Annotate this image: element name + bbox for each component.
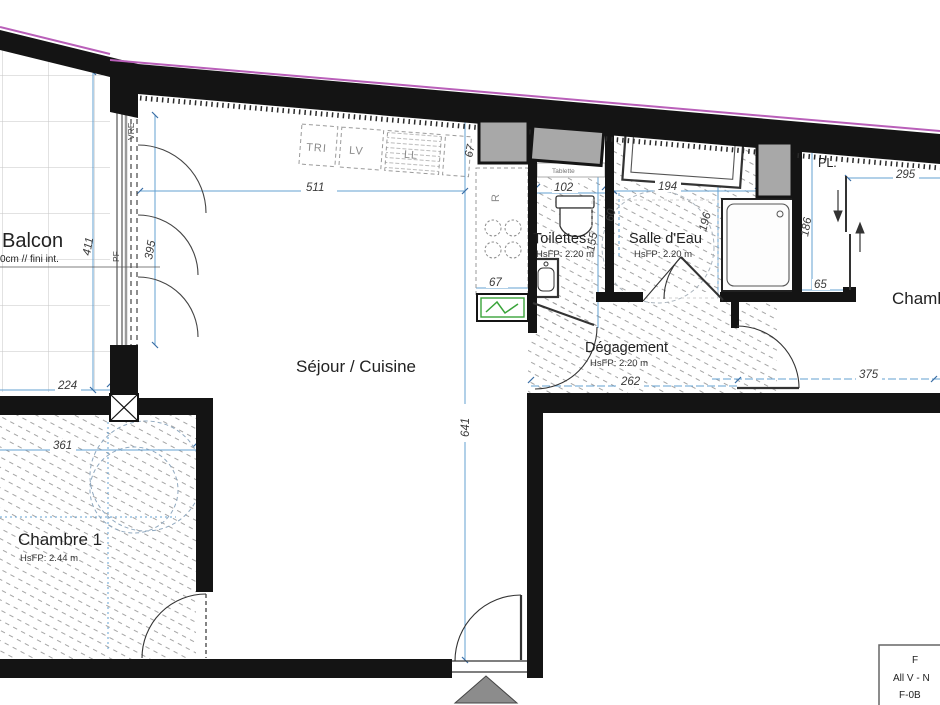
dim-224: 224 bbox=[57, 380, 77, 392]
balcony-window bbox=[117, 110, 206, 350]
chambre1-label: Chambre 1 bbox=[18, 530, 102, 549]
floor-plan-page: TRI LV LL R Tablette bbox=[0, 0, 940, 705]
facade-corner bbox=[110, 57, 138, 118]
dim-295: 295 bbox=[895, 169, 916, 181]
salle-deau-label: Salle d'Eau bbox=[629, 231, 702, 247]
fridge-label: R bbox=[490, 193, 502, 202]
vre-shutter-label: VRE bbox=[126, 122, 136, 140]
dim-65: 65 bbox=[814, 279, 827, 291]
degagement-height: HsFP: 2.20 m bbox=[590, 358, 648, 369]
electric-panel bbox=[477, 294, 528, 321]
tablette-label: Tablette bbox=[552, 168, 575, 175]
chambre1-height: HsFP: 2.44 m bbox=[20, 553, 78, 564]
title-block: F All V - N F-0B bbox=[879, 645, 940, 705]
dim-361: 361 bbox=[53, 440, 72, 452]
toilettes-height: HsFP: 2.20 m bbox=[536, 249, 594, 260]
title-block-line2: All V - N bbox=[893, 673, 930, 684]
kitchen-counter: R bbox=[476, 168, 528, 295]
appliance-tri-label: TRI bbox=[306, 141, 328, 155]
appliance-lv-label: LV bbox=[349, 145, 364, 158]
dim-375: 375 bbox=[859, 369, 879, 381]
shower-fixture bbox=[722, 199, 794, 291]
floor-plan-svg: TRI LV LL R Tablette bbox=[0, 0, 940, 705]
appliance-ll-label: LL bbox=[403, 149, 418, 162]
toilettes-label: Toilettes bbox=[533, 231, 586, 247]
title-block-line3: F-0B bbox=[899, 690, 921, 701]
sejour-label: Séjour / Cuisine bbox=[296, 357, 416, 376]
kitchen-appliance-row: TRI LV LL bbox=[299, 124, 472, 177]
hand-basin-fixture bbox=[534, 259, 558, 297]
cooktop-burners bbox=[485, 220, 521, 258]
dim-262: 262 bbox=[620, 376, 641, 388]
dim-194: 194 bbox=[658, 181, 677, 193]
degagement-label: Dégagement bbox=[585, 340, 668, 356]
dim-102: 102 bbox=[554, 182, 574, 194]
salle-deau-height: HsFP: 2.20 m bbox=[634, 249, 692, 260]
pf-window-label: PF bbox=[111, 251, 121, 262]
entrance-arrow bbox=[455, 676, 517, 703]
dim-641: 641 bbox=[460, 418, 472, 437]
dim-67-kitchen: 67 bbox=[463, 143, 478, 159]
dim-67-counter: 67 bbox=[489, 277, 502, 289]
balcon-label: Balcon bbox=[2, 230, 63, 252]
chambre2-label: Chambre bbox=[892, 289, 940, 308]
placard-label: PL. bbox=[818, 156, 837, 170]
structural-column bbox=[110, 394, 138, 421]
dim-511: 511 bbox=[306, 182, 324, 194]
title-block-line1: F bbox=[912, 655, 918, 666]
dim-395: 395 bbox=[143, 239, 158, 261]
balcon-note: 0cm // fini int. bbox=[0, 254, 59, 265]
